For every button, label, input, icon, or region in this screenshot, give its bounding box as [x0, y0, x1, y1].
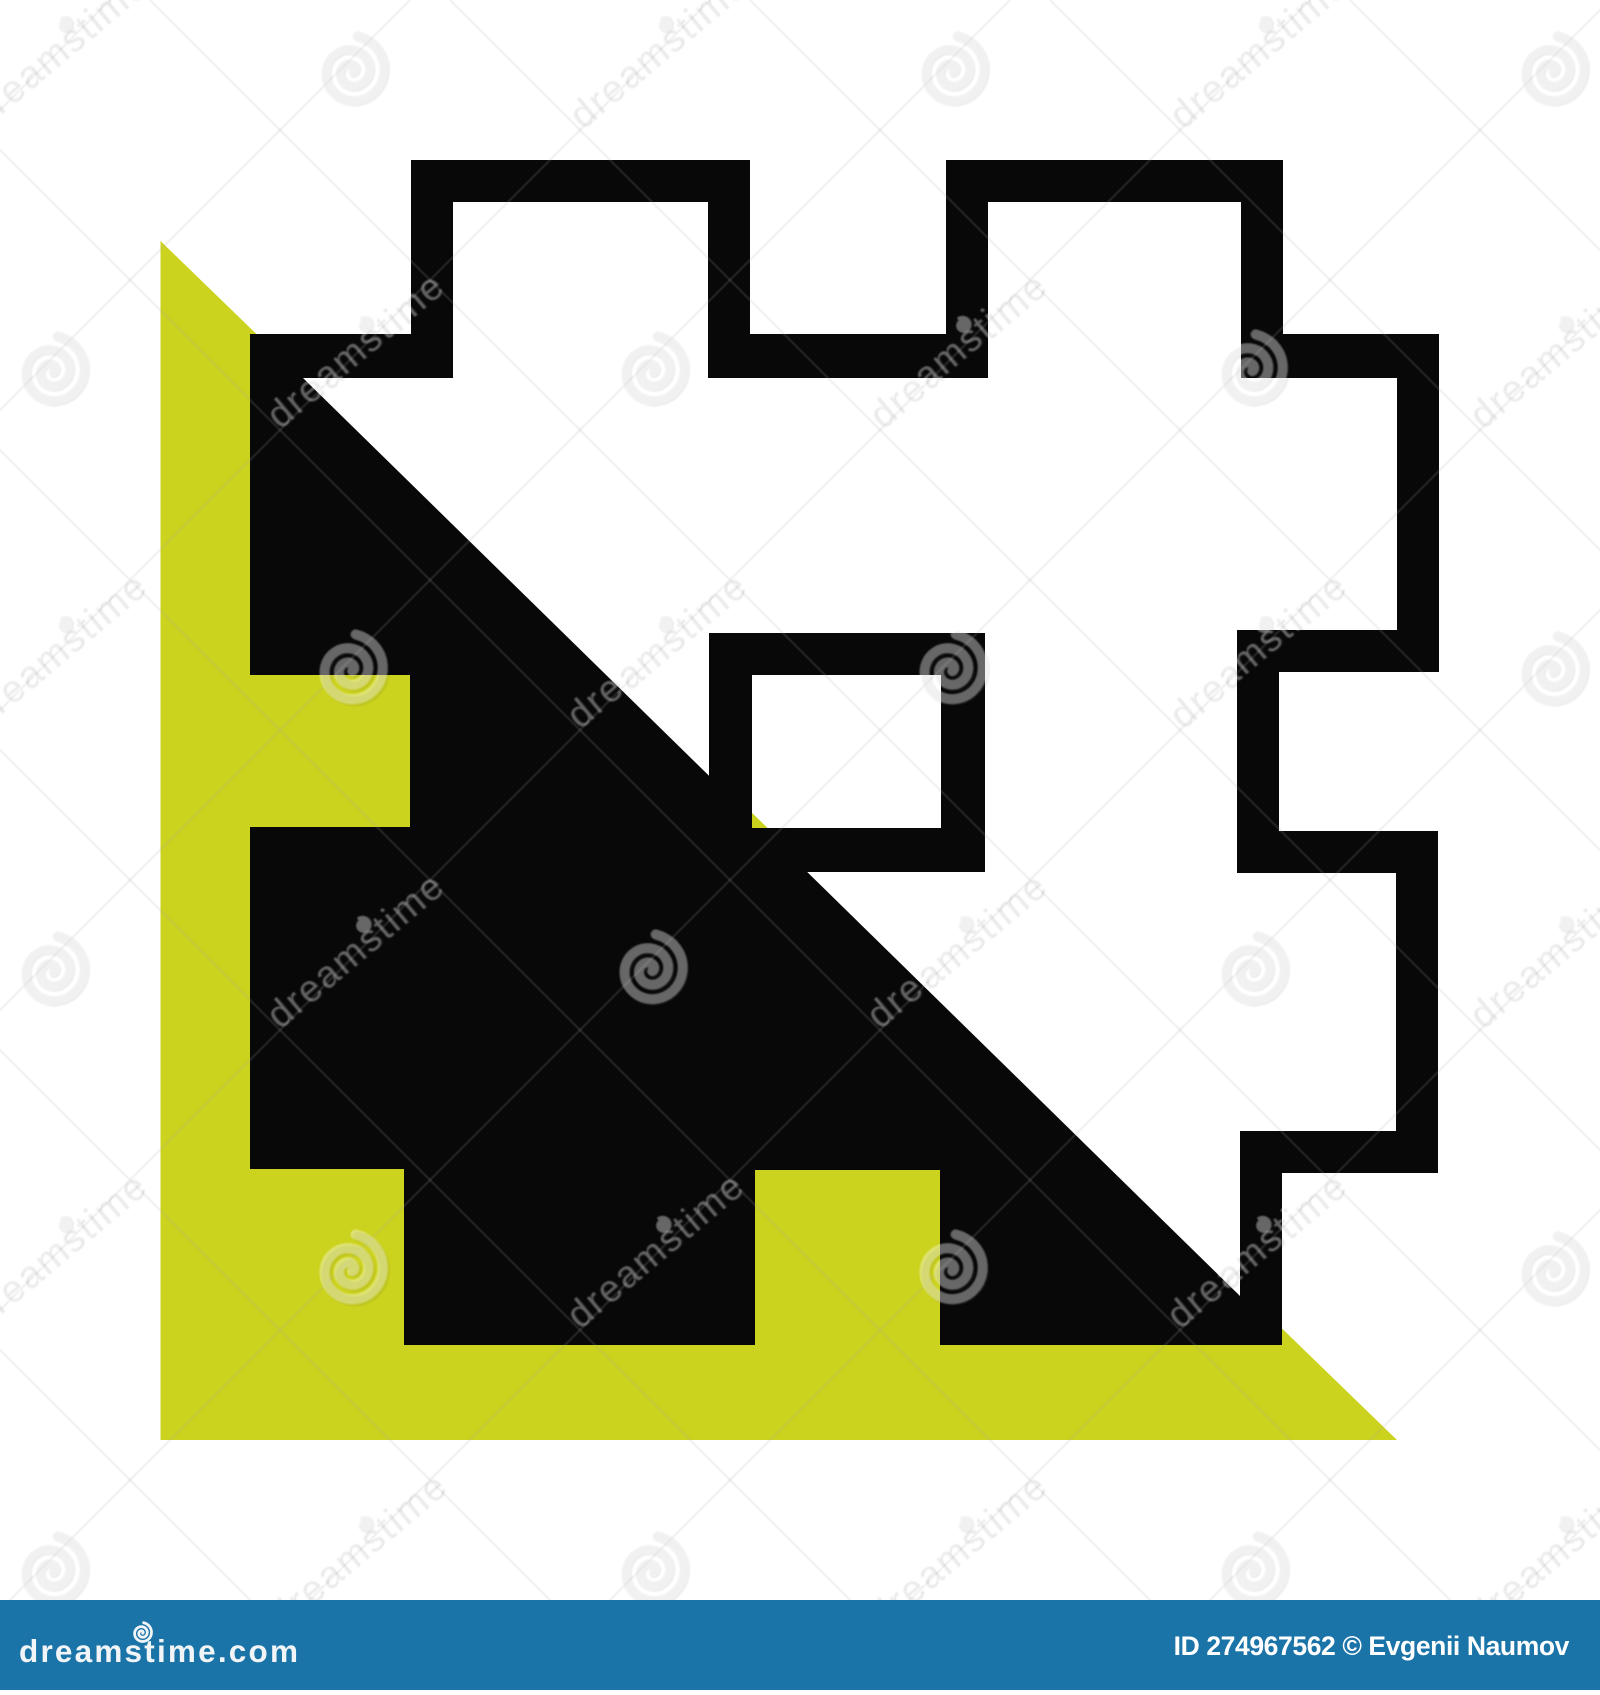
svg-text:ID 274967562 © Evgenii Naumov: ID 274967562 © Evgenii Naumov	[1174, 1631, 1570, 1661]
svg-text:dreamstime.com: dreamstime.com	[19, 1633, 300, 1669]
